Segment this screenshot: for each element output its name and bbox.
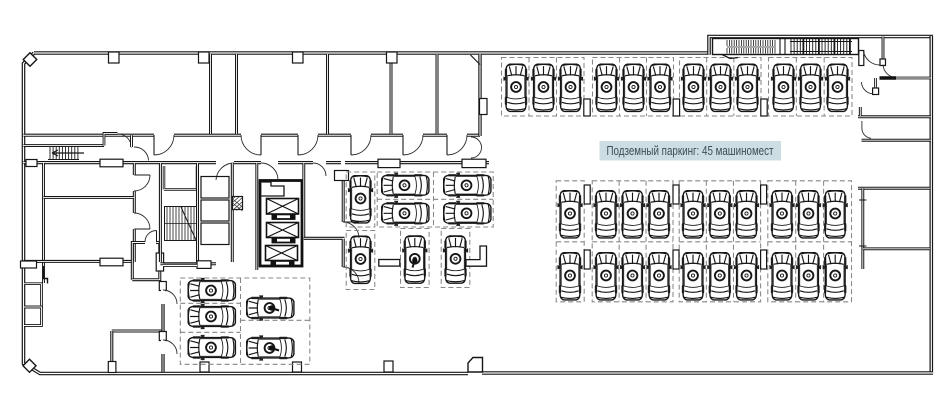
- svg-text:Подземный паркинг: 45 машиноме: Подземный паркинг: 45 машиномест: [607, 143, 774, 158]
